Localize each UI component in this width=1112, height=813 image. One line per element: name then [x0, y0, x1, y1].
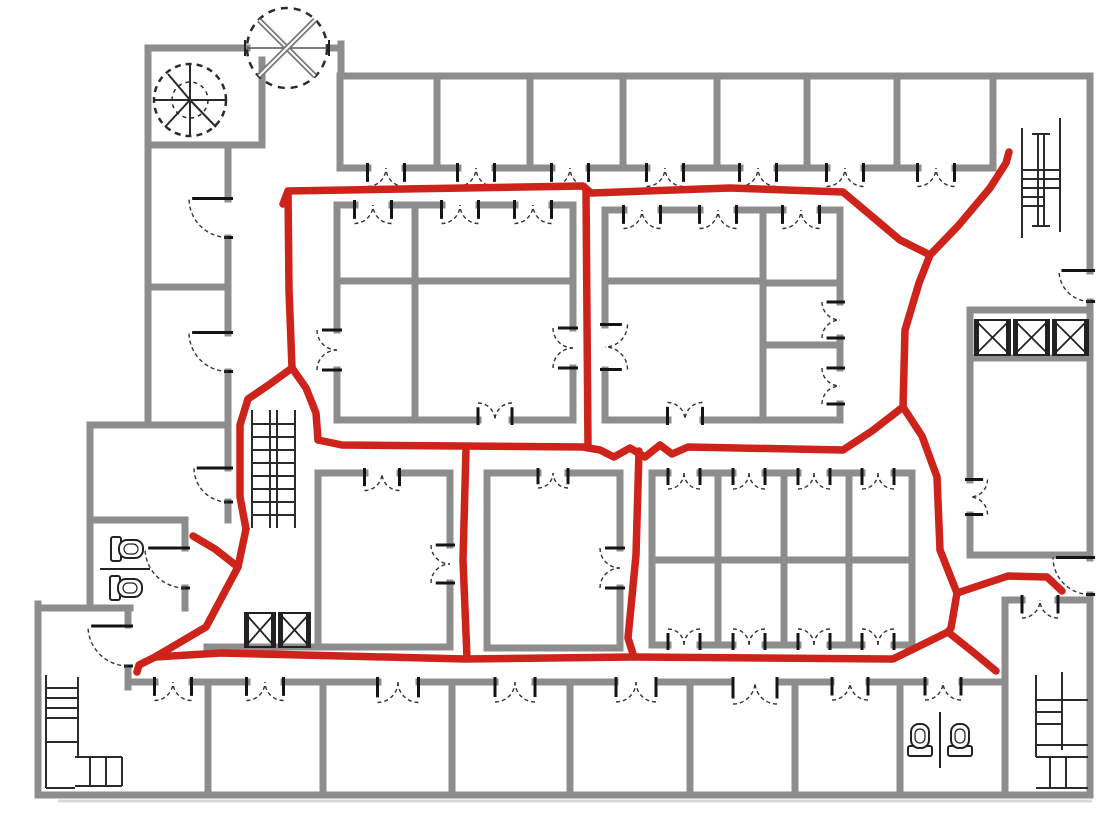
door-symbol	[194, 468, 233, 502]
walls-layer	[38, 44, 1090, 795]
toilet-bowl	[911, 724, 929, 748]
toilet-icon	[110, 576, 142, 600]
elevator	[1053, 320, 1088, 355]
spiral-stair-spoke	[168, 74, 190, 100]
double-door-symbol	[478, 403, 512, 425]
double-door-symbol	[798, 468, 830, 489]
spiral-stair-spoke	[165, 100, 190, 127]
door-symbol	[1059, 271, 1095, 302]
evacuation-route-path	[948, 632, 996, 671]
double-door-symbol	[515, 200, 552, 224]
double-door-symbol	[740, 163, 777, 187]
toilet-icon	[111, 537, 143, 561]
toilet-bowl	[118, 579, 142, 597]
double-door-symbol	[442, 200, 479, 224]
floor-plan-canvas	[0, 0, 1112, 813]
door-swing-arc	[398, 682, 419, 703]
double-door-symbol	[925, 677, 961, 700]
door-symbol	[189, 333, 233, 372]
double-door-symbol	[600, 325, 628, 370]
evacuation-route-path	[586, 190, 588, 447]
evacuation-route-path	[288, 191, 292, 368]
door-swing-arc	[1059, 271, 1090, 302]
revolving-door	[247, 8, 327, 88]
double-door-symbol	[1022, 595, 1058, 618]
double-door-symbol	[822, 368, 845, 404]
double-door-symbol	[668, 468, 700, 489]
door-swing-arc	[194, 468, 228, 502]
elevator	[975, 320, 1010, 355]
double-door-symbol	[647, 163, 684, 187]
stairs-layer	[46, 40, 1088, 788]
double-door-symbol	[822, 302, 845, 338]
elevator	[245, 613, 275, 647]
door-symbol	[189, 199, 233, 238]
toilet-icon	[908, 724, 932, 756]
double-door-symbol	[553, 328, 578, 368]
evacuation-route-path	[463, 449, 467, 658]
door-swing-arc	[850, 682, 868, 700]
toilet-bowl	[951, 724, 969, 748]
double-door-symbol	[355, 200, 392, 224]
door-swing-arc	[733, 682, 755, 704]
double-door-symbol	[317, 330, 342, 370]
double-door-symbol	[668, 629, 700, 650]
double-door-symbol	[733, 677, 777, 704]
door-swing-arc	[755, 682, 777, 704]
double-door-symbol	[378, 677, 419, 703]
double-door-symbol	[827, 163, 864, 187]
door-swing-arc	[832, 682, 850, 700]
floor-plan	[0, 0, 1112, 813]
elevator	[1014, 320, 1049, 355]
double-door-symbol	[918, 163, 955, 187]
spiral-stair-spoke	[190, 100, 216, 127]
double-door-symbol	[862, 468, 894, 489]
double-door-symbol	[733, 629, 765, 650]
double-door-symbol	[783, 205, 820, 229]
door-swing-arc	[943, 682, 961, 700]
double-door-symbol	[495, 677, 535, 702]
door-swing-arc	[145, 548, 185, 588]
door-symbol	[88, 626, 133, 666]
double-door-symbol	[965, 480, 988, 515]
door-swing-arc	[616, 682, 636, 702]
double-door-symbol	[247, 677, 284, 701]
double-door-symbol	[155, 677, 192, 701]
toilet-bowl	[119, 540, 143, 558]
evacuation-route-path	[948, 593, 957, 632]
door-symbol	[145, 548, 190, 588]
double-door-symbol	[832, 677, 868, 700]
evacuation-route-path	[957, 576, 1062, 593]
double-door-symbol	[733, 468, 765, 489]
double-door-symbol	[700, 205, 737, 229]
double-door-symbol	[668, 403, 703, 426]
elevator	[279, 613, 310, 647]
double-door-symbol	[368, 163, 405, 187]
spiral-staircase	[154, 64, 226, 136]
door-swing-arc	[189, 199, 228, 238]
double-door-symbol	[624, 205, 661, 229]
evacuation-route-path	[628, 451, 639, 657]
double-door-symbol	[600, 548, 625, 588]
double-door-symbol	[616, 677, 656, 702]
double-door-symbol	[538, 468, 568, 488]
door-swing-arc	[636, 682, 656, 702]
double-door-symbol	[458, 163, 495, 187]
door-swing-arc	[88, 626, 128, 666]
door-swing-arc	[189, 333, 228, 372]
double-door-symbol	[365, 468, 400, 491]
double-door-symbol	[431, 545, 455, 583]
evacuation-route-path	[318, 407, 903, 457]
toilet-icon	[948, 724, 972, 756]
evacuation-route-path	[193, 536, 238, 567]
double-door-symbol	[798, 629, 830, 650]
evacuation-route-path	[240, 368, 292, 529]
door-swing-arc	[605, 347, 628, 370]
route-overlay	[137, 152, 1062, 672]
double-door-symbol	[862, 629, 894, 650]
